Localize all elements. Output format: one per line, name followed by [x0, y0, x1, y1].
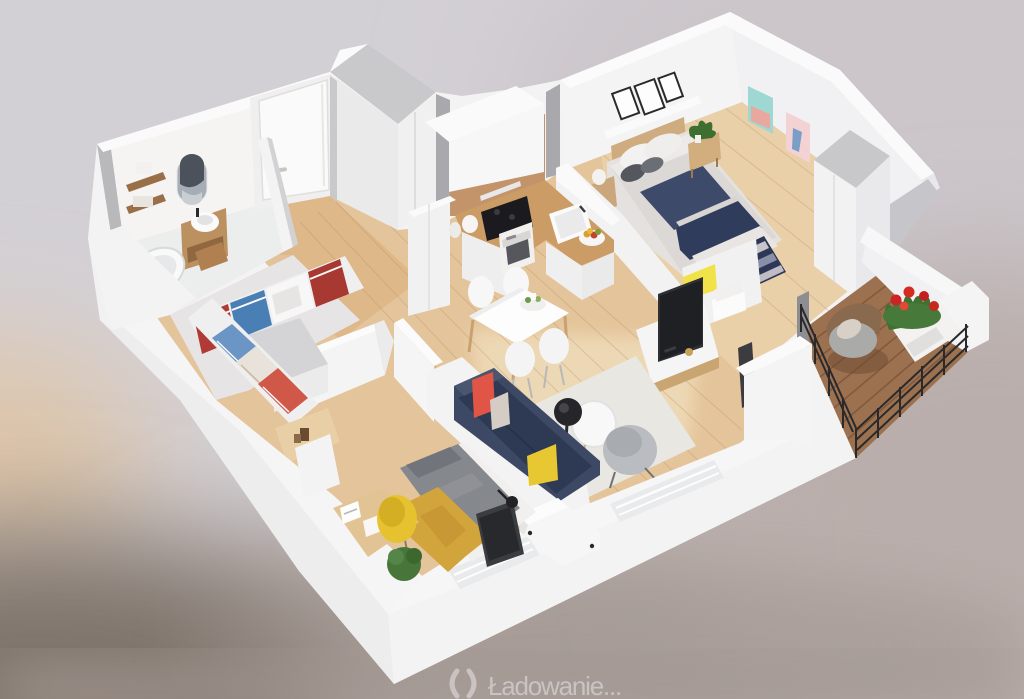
svg-text:Ładowanie...: Ładowanie... — [488, 671, 621, 699]
